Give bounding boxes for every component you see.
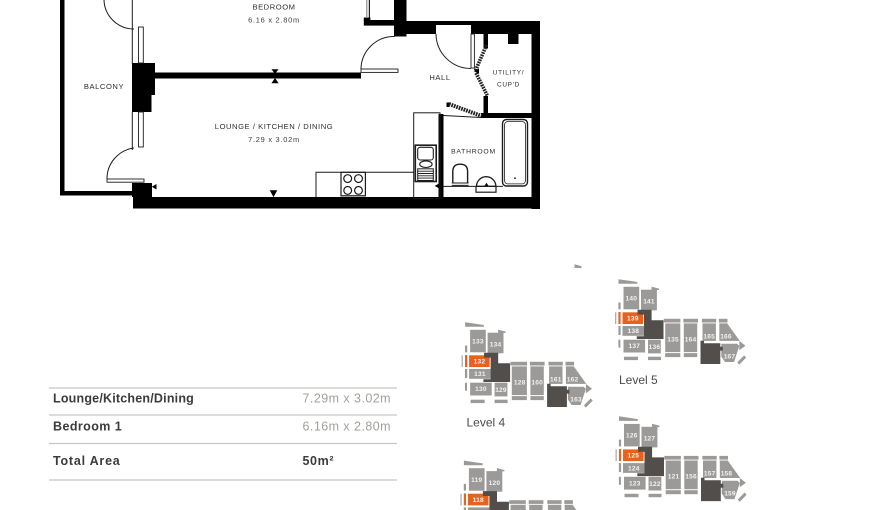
- svg-text:6.16 x 2.80m: 6.16 x 2.80m: [248, 15, 300, 24]
- svg-text:128: 128: [514, 379, 526, 386]
- svg-text:137: 137: [628, 343, 640, 350]
- svg-text:BATHROOM: BATHROOM: [451, 149, 496, 156]
- svg-text:7.29m x 3.02m: 7.29m x 3.02m: [303, 392, 392, 406]
- svg-text:138: 138: [627, 328, 639, 335]
- svg-text:167: 167: [724, 354, 736, 361]
- svg-text:124: 124: [628, 465, 640, 472]
- svg-text:127: 127: [644, 436, 656, 443]
- svg-text:119: 119: [471, 477, 482, 484]
- svg-text:156: 156: [685, 473, 697, 480]
- svg-text:Level 4: Level 4: [467, 416, 506, 430]
- svg-text:118: 118: [473, 497, 484, 504]
- svg-text:141: 141: [643, 299, 655, 306]
- svg-text:6.16m x 2.80m: 6.16m x 2.80m: [303, 420, 392, 434]
- svg-text:139: 139: [627, 316, 639, 323]
- svg-text:BEDROOM: BEDROOM: [252, 3, 295, 12]
- svg-text:122: 122: [649, 481, 661, 488]
- svg-text:165: 165: [703, 333, 715, 340]
- svg-text:BALCONY: BALCONY: [84, 82, 124, 91]
- svg-text:135: 135: [667, 336, 679, 343]
- svg-text:50m²: 50m²: [303, 454, 335, 468]
- svg-text:125: 125: [627, 453, 639, 460]
- svg-text:126: 126: [626, 433, 638, 440]
- svg-text:160: 160: [531, 379, 543, 386]
- svg-text:131: 131: [474, 371, 486, 378]
- svg-text:Bedroom 1: Bedroom 1: [53, 420, 122, 434]
- svg-text:Level 5: Level 5: [619, 373, 658, 387]
- svg-text:157: 157: [704, 471, 716, 478]
- svg-text:158: 158: [721, 471, 733, 478]
- svg-text:CUP'D: CUP'D: [497, 82, 520, 89]
- svg-text:LOUNGE / KITCHEN / DINING: LOUNGE / KITCHEN / DINING: [215, 122, 333, 131]
- svg-text:Lounge/Kitchen/Dining: Lounge/Kitchen/Dining: [53, 392, 194, 406]
- svg-text:134: 134: [490, 342, 502, 349]
- svg-text:123: 123: [629, 480, 641, 487]
- svg-text:136: 136: [649, 344, 661, 351]
- svg-text:120: 120: [489, 480, 501, 487]
- svg-text:161: 161: [550, 376, 562, 383]
- svg-text:Total Area: Total Area: [53, 454, 121, 468]
- svg-text:121: 121: [668, 473, 680, 480]
- svg-text:163: 163: [570, 397, 582, 404]
- svg-text:133: 133: [472, 339, 484, 346]
- svg-text:UTILITY/: UTILITY/: [493, 70, 525, 77]
- svg-text:7.29 x 3.02m: 7.29 x 3.02m: [248, 135, 300, 144]
- svg-text:HALL: HALL: [429, 73, 450, 82]
- svg-text:130: 130: [475, 386, 487, 393]
- svg-text:166: 166: [720, 333, 732, 340]
- svg-text:159: 159: [724, 491, 736, 498]
- svg-text:132: 132: [474, 359, 486, 366]
- svg-text:140: 140: [625, 296, 637, 303]
- svg-text:162: 162: [567, 376, 579, 383]
- svg-text:164: 164: [685, 336, 697, 343]
- svg-text:129: 129: [495, 387, 507, 394]
